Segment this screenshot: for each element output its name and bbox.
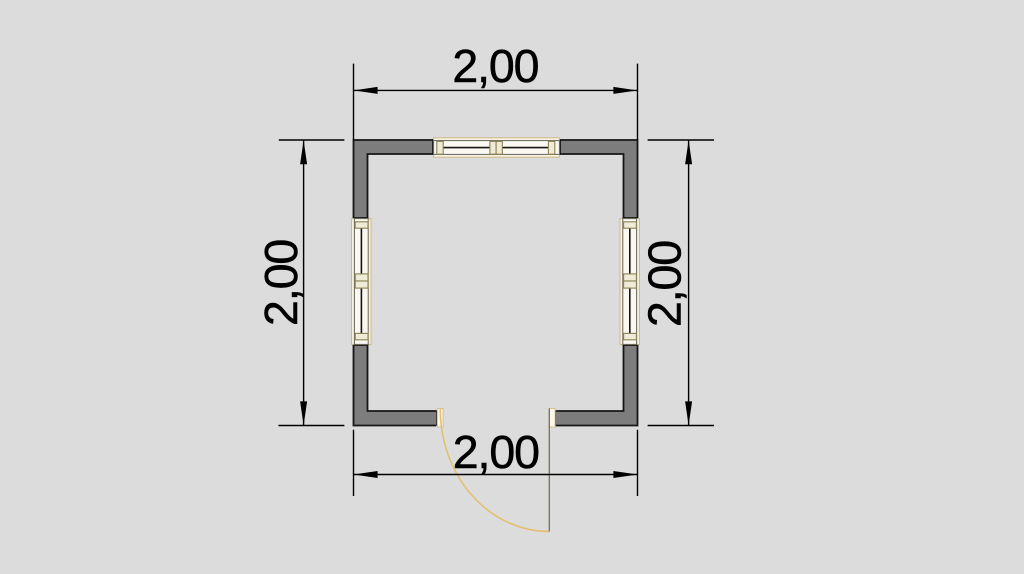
svg-text:2,00: 2,00 xyxy=(638,241,690,327)
svg-text:2,00: 2,00 xyxy=(452,40,538,92)
svg-text:2,00: 2,00 xyxy=(453,426,539,478)
svg-text:2,00: 2,00 xyxy=(255,240,307,326)
